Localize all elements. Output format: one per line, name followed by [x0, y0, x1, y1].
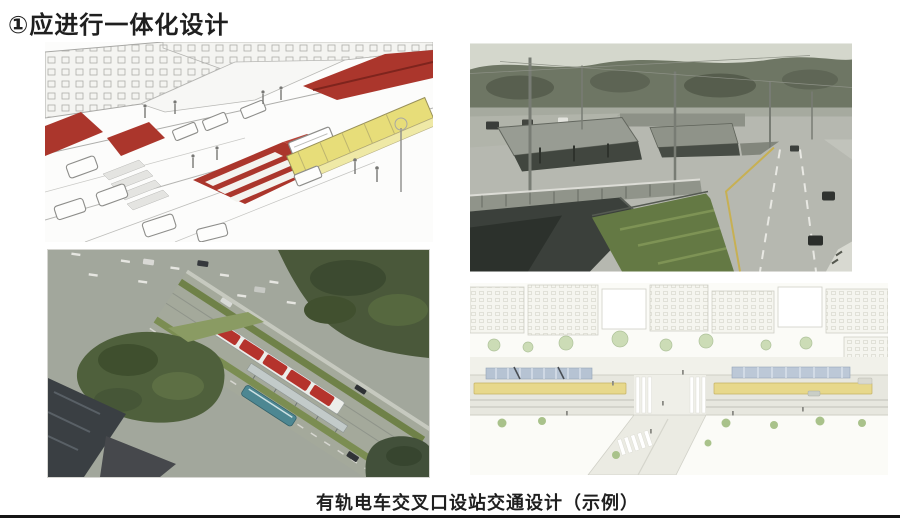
figure-tram-aerial-render	[47, 249, 430, 478]
figure-station-plan-sketch	[470, 283, 888, 475]
figure-brt-station-photo	[470, 43, 852, 272]
figure-caption: 有轨电车交叉口设站交通设计（示例）	[0, 489, 900, 515]
tram-aerial-render-image	[48, 250, 429, 477]
brt-station-photo-image	[470, 43, 852, 272]
intersection-sketch-illustration	[45, 42, 433, 242]
slide: ①应进行一体化设计	[0, 0, 900, 523]
station-plan-sketch-image	[470, 283, 888, 475]
figure-integrated-intersection-sketch	[45, 42, 433, 242]
bottom-divider-rule	[0, 515, 900, 518]
page-title: ①应进行一体化设计	[8, 5, 229, 40]
